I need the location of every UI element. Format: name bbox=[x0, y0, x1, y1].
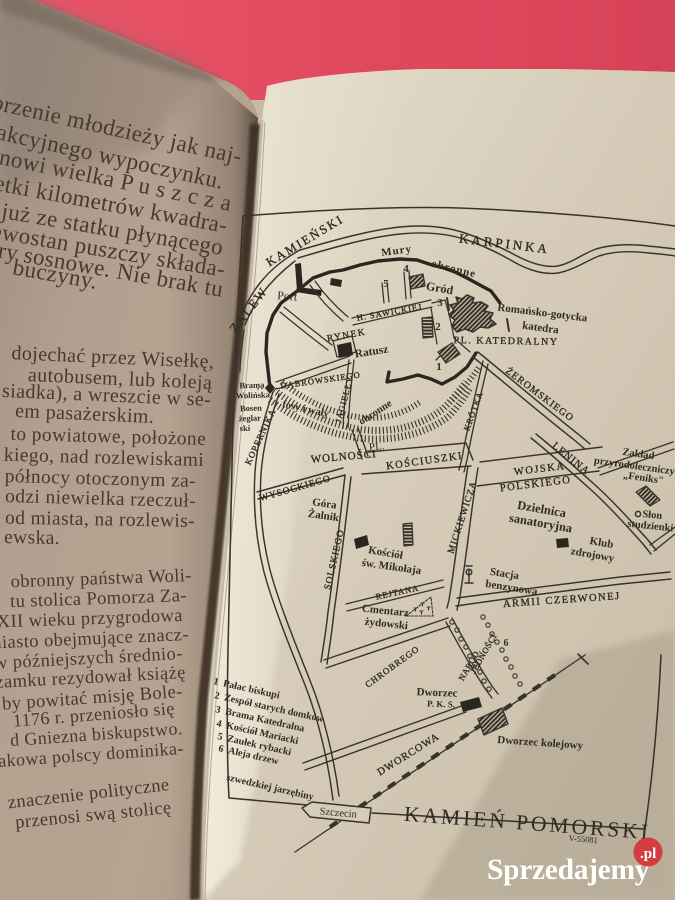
svg-text:Port: Port bbox=[277, 288, 299, 303]
svg-text:Sprzedajemy: Sprzedajemy bbox=[487, 854, 650, 886]
svg-text:Dworzec: Dworzec bbox=[416, 686, 457, 699]
svg-text:PL. KATEDRALNY: PL. KATEDRALNY bbox=[454, 335, 559, 348]
svg-text:żeglar: żeglar bbox=[239, 413, 262, 424]
svg-text:.pl: .pl bbox=[640, 846, 656, 862]
svg-text:6: 6 bbox=[504, 638, 509, 649]
svg-text:1: 1 bbox=[436, 361, 442, 373]
svg-text:ski: ski bbox=[240, 423, 251, 433]
svg-text:2: 2 bbox=[435, 321, 441, 333]
svg-text:3: 3 bbox=[437, 297, 443, 309]
svg-text:5: 5 bbox=[383, 278, 389, 290]
svg-text:Wolińska: Wolińska bbox=[236, 389, 271, 400]
svg-text:P. K. S.: P. K. S. bbox=[427, 699, 455, 710]
svg-text:ewska.: ewska. bbox=[4, 527, 60, 549]
svg-text:4: 4 bbox=[403, 263, 409, 275]
